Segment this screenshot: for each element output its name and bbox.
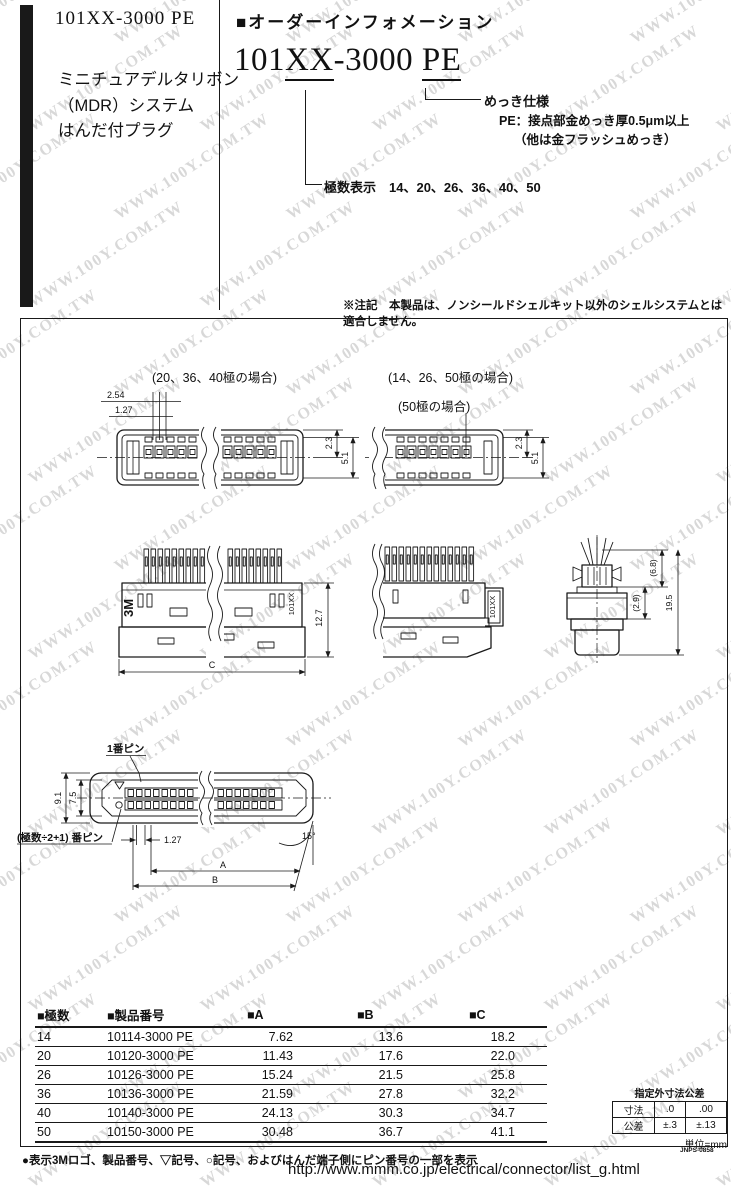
dim-C: C: [209, 660, 216, 670]
cell-poles: 40: [35, 1104, 105, 1123]
tol-dim-label: 寸法: [613, 1102, 655, 1118]
dim-2.3: 2.3: [514, 437, 524, 450]
housing-outline: [379, 583, 485, 618]
cell-b: 36.7: [355, 1123, 467, 1143]
cell-product: 10126-3000 PE: [105, 1066, 245, 1085]
cell-product: 10114-3000 PE: [105, 1027, 245, 1047]
cell-a: 24.13: [245, 1104, 355, 1123]
pinmid-label: (極数÷2+1) 番ピン: [17, 831, 103, 844]
base-outline: [379, 627, 491, 657]
poles-indication: 極数表示 14、20、26、36、40、50: [324, 177, 541, 196]
pinmid-circle-mark: [116, 802, 122, 808]
cell-poles: 50: [35, 1123, 105, 1143]
dim-7.5: 7.5: [68, 792, 78, 805]
dim-5.1: 5.1: [340, 452, 350, 465]
tol-tol-1: ±.3: [655, 1118, 686, 1134]
pin1-triangle-mark: [115, 782, 124, 789]
drawing-end-view: (6.8) (2.9) 19.5: [550, 535, 700, 670]
dim-2.3: 2.3: [324, 437, 334, 450]
case-label-left: (20、36、40極の場合): [152, 367, 277, 386]
pn-plating: PE: [422, 42, 462, 81]
cell-c: 34.7: [467, 1104, 547, 1123]
side-black-bar: [20, 5, 33, 307]
dim-pitch-254: 2.54: [107, 390, 125, 400]
cell-product: 10150-3000 PE: [105, 1123, 245, 1143]
tol-dim-1: .0: [655, 1102, 686, 1118]
dim-A: A: [220, 860, 226, 870]
drawing-face-view-left: 2.54 1.27: [95, 385, 365, 503]
cell-c: 41.1: [467, 1123, 547, 1143]
pn-base: 101: [234, 42, 285, 78]
product-subtitle: ミニチュアデルタリボン （MDR）システム はんだ付プラグ: [58, 68, 239, 145]
document-code: JNPS-0858: [680, 1147, 714, 1154]
col-header-c: ■C: [467, 1003, 547, 1027]
cell-product: 10136-3000 PE: [105, 1085, 245, 1104]
subtitle-line: はんだ付プラグ: [58, 119, 239, 145]
cell-a: 15.24: [245, 1066, 355, 1085]
dim-pitch-127: 1.27: [115, 405, 133, 415]
dim-2.9: (2.9): [631, 594, 641, 612]
pn-mid: -3000: [334, 42, 414, 78]
cell-b: 30.3: [355, 1104, 467, 1123]
cell-a: 21.59: [245, 1085, 355, 1104]
cell-a: 7.62: [245, 1027, 355, 1047]
plating-spec-label: めっき仕様: [484, 91, 549, 110]
cell-c: 32.2: [467, 1085, 547, 1104]
cell-product: 10140-3000 PE: [105, 1104, 245, 1123]
cell-poles: 36: [35, 1085, 105, 1104]
pn-variable: XX: [285, 42, 334, 81]
dim-19.5: 19.5: [664, 594, 674, 611]
table-row: 14 10114-3000 PE 7.62 13.6 18.2: [35, 1027, 547, 1047]
solder-pins: [385, 547, 474, 581]
table-row: 40 10140-3000 PE 24.13 30.3 34.7: [35, 1104, 547, 1123]
case-label-right: (14、26、50極の場合): [388, 367, 513, 386]
tol-tol-2: ±.13: [685, 1118, 726, 1134]
model-marking: 101XX: [488, 596, 497, 619]
drawing-top-view: 1番ピン 9.1 7.5: [15, 733, 615, 908]
table-row: 36 10136-3000 PE 21.59 27.8 32.2: [35, 1085, 547, 1104]
col-header-poles: ■極数: [35, 1003, 105, 1027]
logo-3m: 3M: [121, 599, 136, 617]
cell-poles: 26: [35, 1066, 105, 1085]
tolerance-box: 指定外寸法公差 寸法 .0 .00 公差 ±.3 ±.13 単位=mm: [612, 1085, 727, 1151]
model-marking: 101XX: [287, 593, 296, 616]
cell-b: 27.8: [355, 1085, 467, 1104]
dim-1.27: 1.27: [164, 835, 182, 845]
cell-c: 22.0: [467, 1047, 547, 1066]
cell-poles: 20: [35, 1047, 105, 1066]
col-header-product: ■製品番号: [105, 1003, 245, 1027]
cell-b: 21.5: [355, 1066, 467, 1085]
col-header-b: ■B: [355, 1003, 467, 1027]
plating-spec-line2: （他は金フラッシュめっき）: [514, 129, 677, 148]
dim-angle-15: 15°: [302, 831, 316, 841]
callout-line-poles: [305, 90, 306, 185]
parts-table: ■極数 ■製品番号 ■A ■B ■C 14 10114-3000 PE 7.62…: [35, 1003, 547, 1143]
pin1-label: 1番ピン: [107, 742, 144, 755]
page-title-part-number: 101XX-3000 PE: [55, 8, 195, 30]
drawing-side-view-left: 3M 101XX 12.7 C: [100, 538, 370, 688]
drawing-face-view-right: 2.3 5.1: [363, 385, 563, 503]
dim-B: B: [212, 875, 218, 885]
table-row: 20 10120-3000 PE 11.43 17.6 22.0: [35, 1047, 547, 1066]
dim-6.8: (6.8): [648, 559, 658, 577]
cell-product: 10120-3000 PE: [105, 1047, 245, 1066]
tol-dim-2: .00: [685, 1102, 726, 1118]
table-header-row: ■極数 ■製品番号 ■A ■B ■C: [35, 1003, 547, 1027]
dim-5.1: 5.1: [530, 452, 540, 465]
subtitle-line: ミニチュアデルタリボン: [58, 68, 239, 94]
callout-tick-plating: [425, 99, 481, 100]
subtitle-line: （MDR）システム: [58, 94, 239, 120]
datasheet-page: WWW.100Y.COM.TWWWW.100Y.COM.TWWWW.100Y.C…: [0, 0, 731, 1192]
cell-poles: 14: [35, 1027, 105, 1047]
dim-9.1: 9.1: [53, 792, 63, 805]
drawing-side-view-right: 101XX: [365, 538, 545, 688]
table-row: 26 10126-3000 PE 15.24 21.5 25.8: [35, 1066, 547, 1085]
header-divider: [219, 0, 220, 310]
col-header-a: ■A: [245, 1003, 355, 1027]
cell-b: 13.6: [355, 1027, 467, 1047]
cell-a: 11.43: [245, 1047, 355, 1066]
cell-c: 18.2: [467, 1027, 547, 1047]
cell-c: 25.8: [467, 1066, 547, 1085]
order-part-number: 101XX-3000 PE: [234, 42, 461, 79]
dim-12.7: 12.7: [314, 609, 324, 627]
tol-tol-label: 公差: [613, 1118, 655, 1134]
callout-tick-poles: [305, 184, 322, 185]
plating-spec-line1: PE：接点部金めっき厚0.5μm以上: [499, 110, 689, 129]
cell-a: 30.48: [245, 1123, 355, 1143]
source-url: http://www.mmm.co.jp/electrical/connecto…: [288, 1161, 640, 1178]
tolerance-table: 寸法 .0 .00 公差 ±.3 ±.13: [612, 1101, 727, 1134]
tolerance-title: 指定外寸法公差: [612, 1085, 727, 1100]
cell-b: 17.6: [355, 1047, 467, 1066]
table-row: 50 10150-3000 PE 30.48 36.7 41.1: [35, 1123, 547, 1143]
order-information-title: ■オーダーインフォメーション: [236, 8, 494, 33]
